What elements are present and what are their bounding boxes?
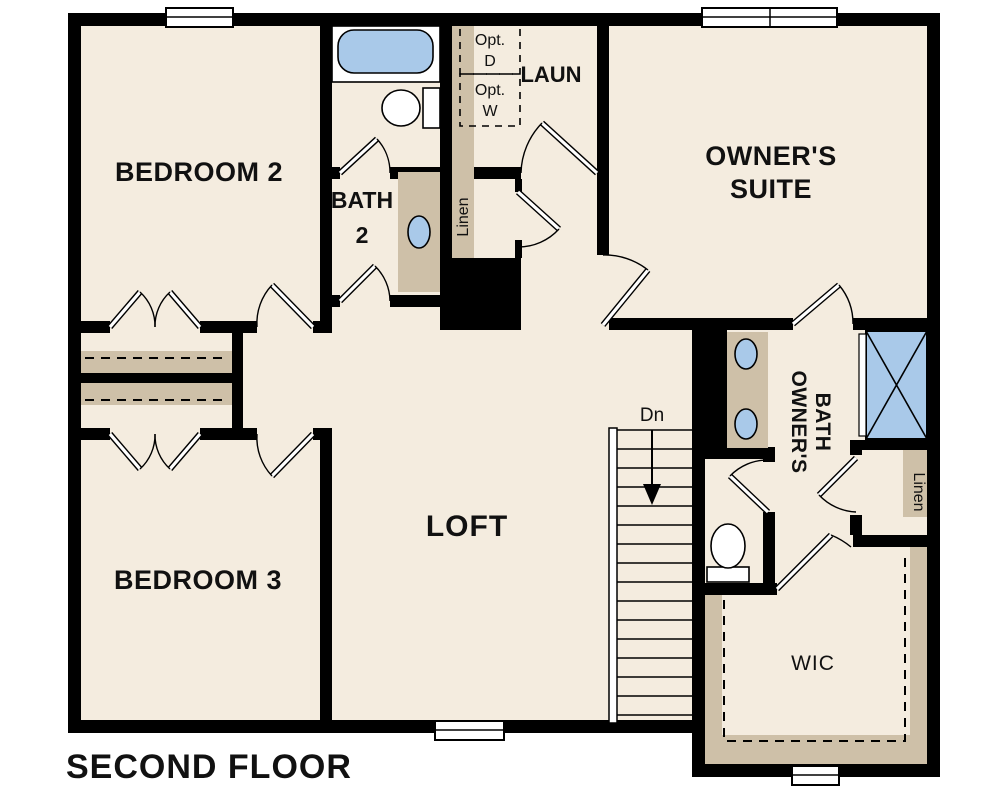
label-owners-suite-line2: SUITE: [730, 174, 812, 204]
window-owners-suite: [702, 8, 837, 27]
label-bedroom3: BEDROOM 3: [114, 565, 282, 595]
sink-owners-2: [735, 409, 757, 439]
label-bath2-line2: 2: [356, 222, 369, 248]
window-bedroom2: [166, 8, 233, 27]
wall-stair-right: [692, 450, 705, 777]
wall-closet-divider: [81, 373, 232, 383]
label-owners-suite-line1: OWNER'S: [705, 141, 836, 171]
wall-bed2-bottom-b: [200, 321, 233, 333]
wall-owners-left: [597, 26, 609, 255]
sink-owners-1: [735, 339, 757, 369]
wall-linen2-stub-b: [850, 515, 862, 535]
wall-wc-top: [692, 447, 770, 459]
wall-linen1-stub-a: [515, 179, 522, 192]
label-bath2-line1: BATH: [331, 187, 393, 213]
label-linen-left: Linen: [455, 197, 472, 236]
label-laundry: LAUN: [520, 62, 581, 87]
label-owners-bath-line2: BATH: [811, 393, 834, 452]
wic-shelf-right: [910, 547, 927, 764]
shower-glass: [859, 334, 866, 436]
wall-linen2-stub-a: [850, 440, 862, 455]
shower-owners: [859, 331, 927, 439]
label-opt-dryer-line2: D: [484, 53, 496, 70]
wall-bed3-top-a: [81, 428, 110, 440]
label-wic: WIC: [791, 652, 835, 675]
wall-stair-header: [692, 323, 727, 450]
plan-title: SECOND FLOOR: [66, 748, 352, 786]
label-linen-right: Linen: [910, 472, 927, 511]
window-wic: [792, 766, 839, 785]
toilet-bath2: [382, 88, 440, 128]
sink-bath2: [408, 216, 430, 248]
closet-shelf-bed3: [81, 383, 232, 405]
label-opt-dryer-line1: Opt.: [475, 32, 505, 49]
floor-plan-page: BEDROOM 2 BATH 2 LAUN OWNER'S SUITE LOFT…: [0, 0, 1000, 800]
label-loft: LOFT: [426, 510, 508, 543]
wall-wc-right-b: [763, 512, 775, 595]
wall-bed2-bath2: [320, 26, 332, 322]
wic-shelf-bottom: [705, 735, 927, 764]
label-owners-bath-line1: OWNER'S: [787, 371, 810, 474]
bathtub: [338, 30, 433, 73]
wall-exterior-left: [68, 13, 81, 733]
wall-shower-bottom: [853, 440, 927, 450]
label-stairs-down: Dn: [640, 405, 664, 426]
floor-plan-drawing: BEDROOM 2 BATH 2 LAUN OWNER'S SUITE LOFT…: [0, 0, 1000, 800]
wall-bed3-top-b: [200, 428, 233, 440]
wall-wic-top-right: [853, 535, 940, 547]
label-bedroom2: BEDROOM 2: [115, 157, 283, 187]
closet-shelf-bed2: [81, 351, 232, 373]
wall-closet-right: [232, 321, 243, 440]
wall-bed2-bottom-d: [313, 321, 332, 333]
wall-bed3-top-c: [243, 428, 257, 440]
wall-bed2-bottom-a: [81, 321, 110, 333]
wall-obath-top-right: [853, 318, 927, 330]
wall-bath2-mid-stub: [332, 167, 340, 179]
window-bedroom3: [435, 721, 504, 740]
stair-railing: [609, 428, 617, 723]
wall-bed2-bottom-c: [243, 321, 257, 333]
wall-linen1-stub-b: [515, 240, 522, 258]
wall-wc-bottom: [692, 583, 777, 595]
wall-bath2-bottom-a: [320, 295, 340, 307]
label-opt-washer-line2: W: [482, 103, 498, 120]
label-opt-washer-line1: Opt.: [475, 82, 505, 99]
wall-bed3-right: [320, 428, 332, 720]
wall-chase-block: [440, 258, 521, 330]
wall-exterior-right: [927, 13, 940, 777]
